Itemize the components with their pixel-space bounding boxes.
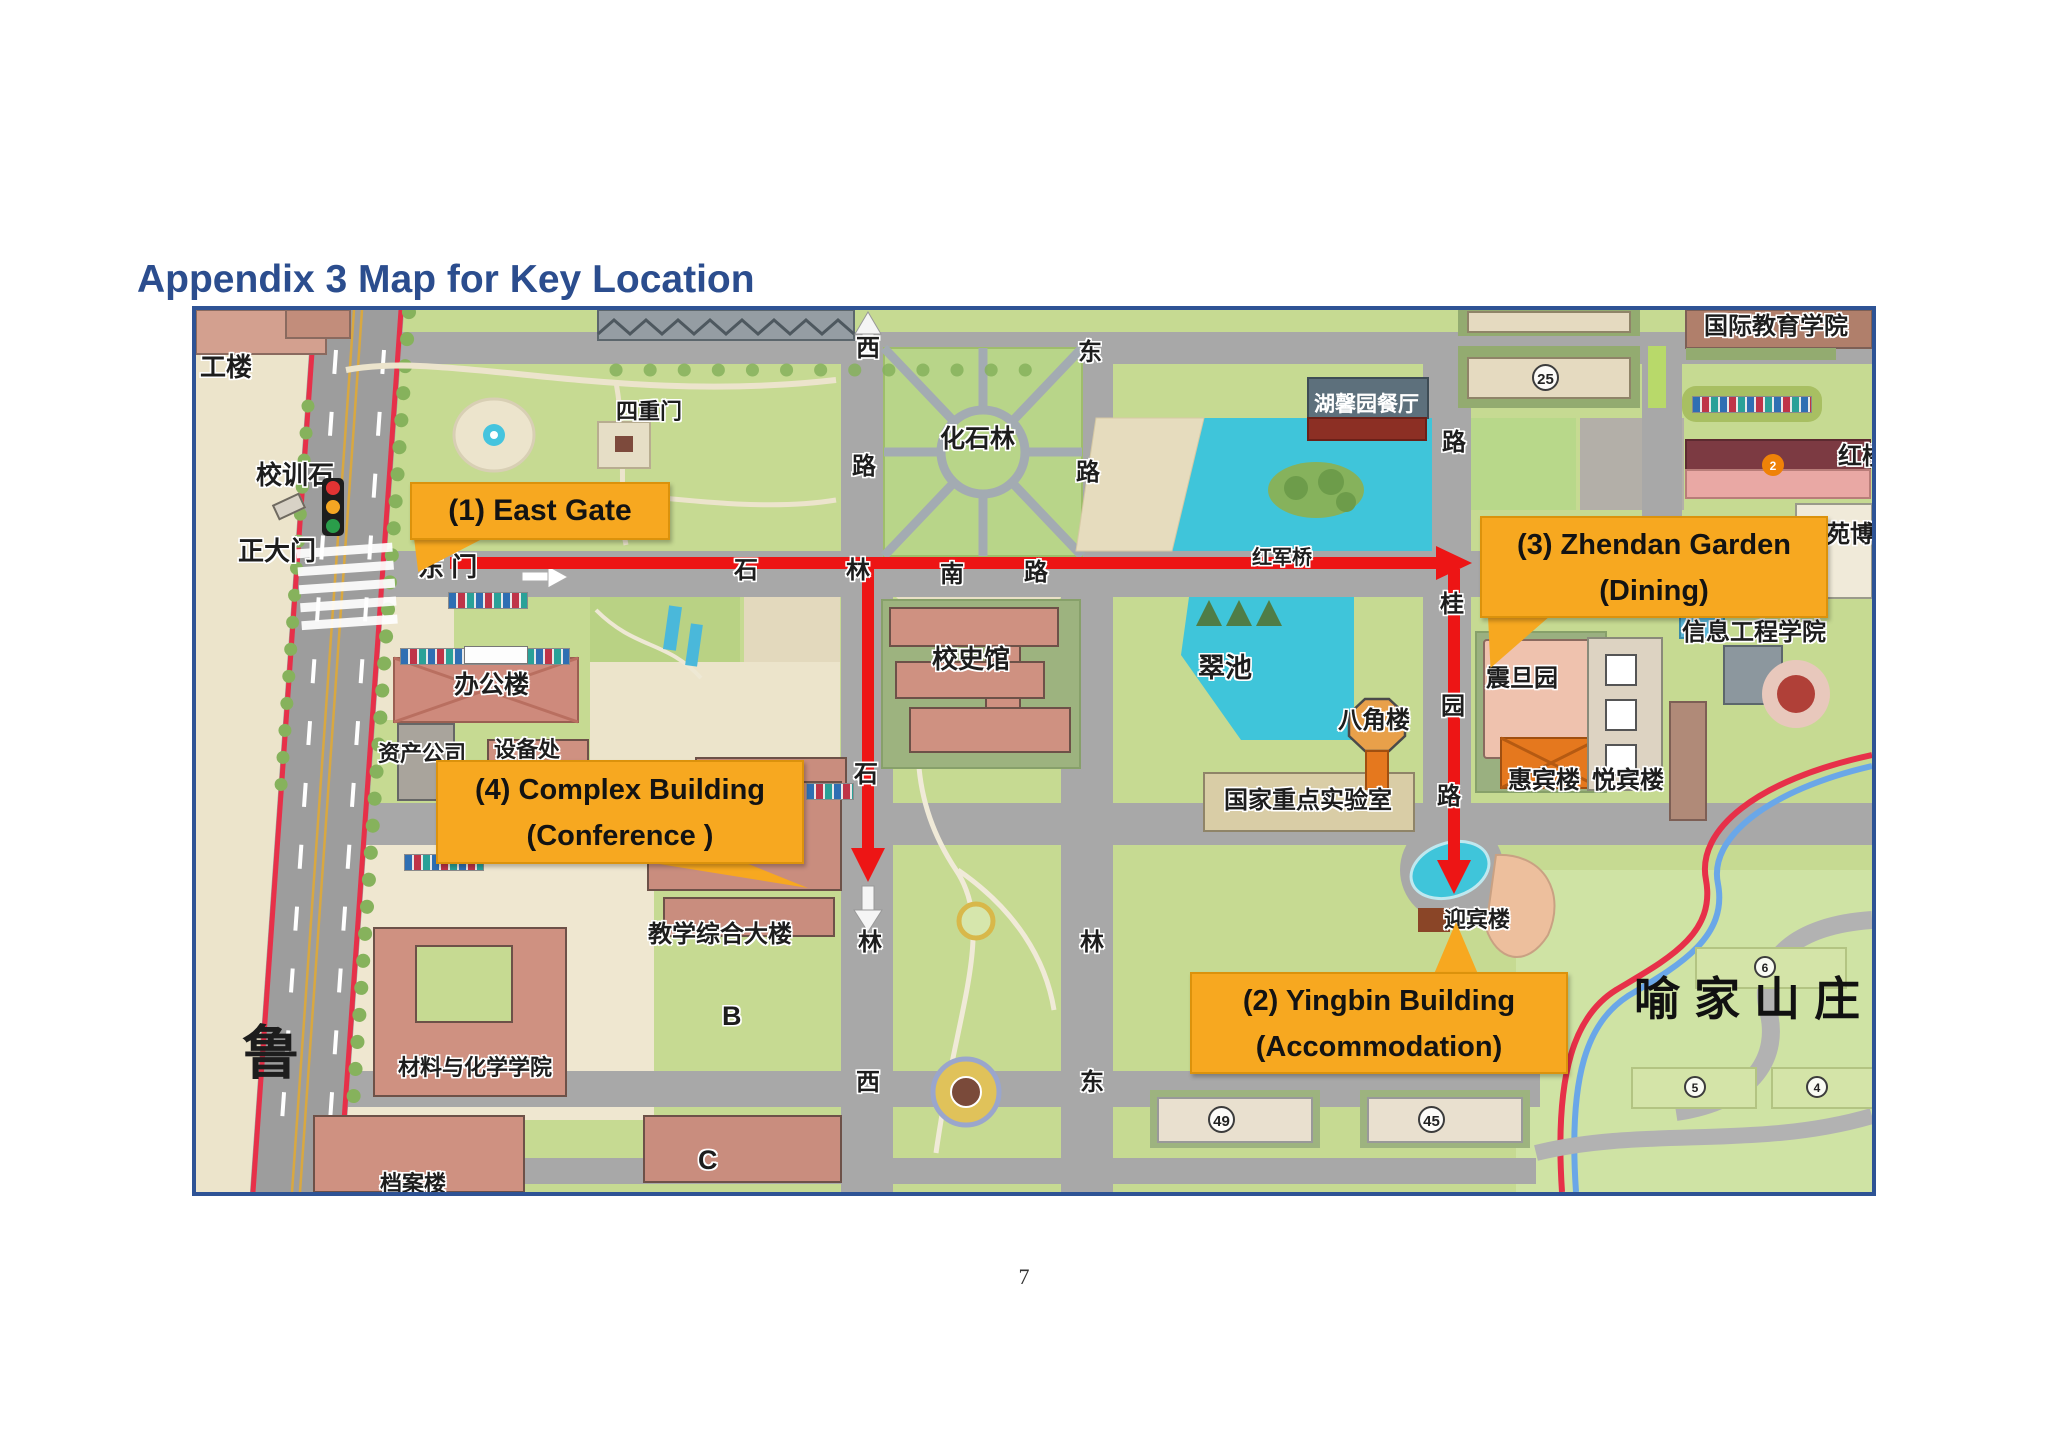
road-char: 林: [846, 558, 870, 583]
label-yujiashanzhuang: 喻家山庄: [1634, 976, 1874, 1024]
callout-east-gate: (1) East Gate: [410, 482, 670, 540]
label-cailiaoyuhuaxue: 材料与化学学院: [398, 1056, 552, 1079]
label-gonglou: 工楼: [200, 354, 252, 381]
label-danganlou: 档案楼: [380, 1172, 446, 1195]
callout-zhendan-line1: (3) Zhendan Garden: [1482, 522, 1826, 568]
callout-complex-line1: (4) Complex Building: [438, 767, 802, 813]
building-number-badge: 4: [1806, 1076, 1828, 1098]
callout-complex-building: (4) Complex Building (Conference ): [436, 760, 804, 864]
callout-east-gate-label: (1) East Gate: [448, 494, 631, 527]
callout-zhendan-line2: (Dining): [1482, 568, 1826, 614]
page-number: 7: [0, 1264, 2048, 1290]
road-char: 路: [1076, 460, 1100, 485]
parking-cars: [448, 592, 528, 609]
road-char: 路: [1442, 430, 1466, 455]
label-zhengdamen: 正大门: [238, 538, 316, 565]
road-char: 南: [940, 562, 964, 587]
road-char: 东: [1080, 1070, 1104, 1095]
callout-zhendan-garden: (3) Zhendan Garden (Dining): [1480, 516, 1828, 618]
road-char: 石: [854, 762, 878, 787]
label-shebeichu: 设备处: [494, 738, 560, 761]
label-guojijiaoyuxueyuan: 国际教育学院: [1704, 314, 1848, 339]
building-number-badge: 2: [1762, 454, 1784, 476]
label-sichongmen: 四重门: [616, 400, 682, 423]
label-building-b: B: [722, 1002, 742, 1030]
label-xiaoshiguan: 校史馆: [932, 646, 1010, 673]
label-honglou: 红楼: [1838, 444, 1876, 469]
callout-complex-line2: (Conference ): [438, 813, 802, 859]
callout-yingbin-building: (2) Yingbin Building (Accommodation): [1190, 972, 1568, 1074]
road-char: 路: [1437, 784, 1461, 809]
road-char: 石: [734, 558, 758, 583]
label-huibinlou: 惠宾楼: [1508, 768, 1580, 793]
road-char: 林: [1080, 930, 1104, 955]
label-yuebinlou: 悦宾楼: [1592, 768, 1664, 793]
label-cuichi: 翠池: [1198, 654, 1252, 682]
road-char: 园: [1441, 694, 1465, 719]
building-number-badge: 45: [1418, 1106, 1445, 1133]
label-huashilin: 化石林: [940, 426, 1015, 452]
label-jiaoxuezonghedalou: 教学综合大楼: [648, 922, 792, 947]
road-char: 路: [852, 454, 876, 479]
label-lu-road: 鲁: [242, 1024, 300, 1085]
parking-cars: [806, 783, 854, 800]
label-xinxigongchengxueyuan: 信息工程学院: [1682, 620, 1826, 645]
parking-cars: [1692, 396, 1812, 413]
gate-sign: [464, 646, 528, 664]
page-title: Appendix 3 Map for Key Location: [137, 258, 755, 302]
road-char: 路: [1024, 560, 1048, 585]
road-char: 桂: [1440, 592, 1464, 617]
document-page: Appendix 3 Map for Key Location: [0, 0, 2048, 1448]
label-hongjunqiao: 红军桥: [1252, 548, 1312, 569]
traffic-light-icon: [322, 478, 344, 536]
callout-yingbin-line2: (Accommodation): [1192, 1024, 1566, 1070]
label-huxinyuancanting: 湖馨园餐厅: [1314, 394, 1419, 416]
label-zhendanyuan: 震旦园: [1486, 666, 1558, 691]
campus-map: 工楼 校训石 正大门 东 门 四重门 化石林 办公楼 资产公司 设备处 校史馆 …: [192, 306, 1876, 1196]
building-number-badge: 49: [1208, 1106, 1235, 1133]
label-bangonglou: 办公楼: [454, 672, 529, 698]
building-number-badge: 25: [1532, 364, 1559, 391]
road-char: 东: [1078, 340, 1102, 365]
label-yuanbo: 苑博: [1826, 522, 1874, 547]
label-building-c: C: [698, 1146, 718, 1174]
building-number-badge: 6: [1754, 956, 1776, 978]
callout-yingbin-line1: (2) Yingbin Building: [1192, 978, 1566, 1024]
road-char: 西: [856, 336, 880, 361]
road-char: 西: [856, 1070, 880, 1095]
building-number-badge: 5: [1684, 1076, 1706, 1098]
road-char: 林: [858, 930, 882, 955]
label-guojiazhongdianshiyanshi: 国家重点实验室: [1224, 788, 1392, 813]
label-bajiaolou: 八角楼: [1338, 708, 1410, 733]
